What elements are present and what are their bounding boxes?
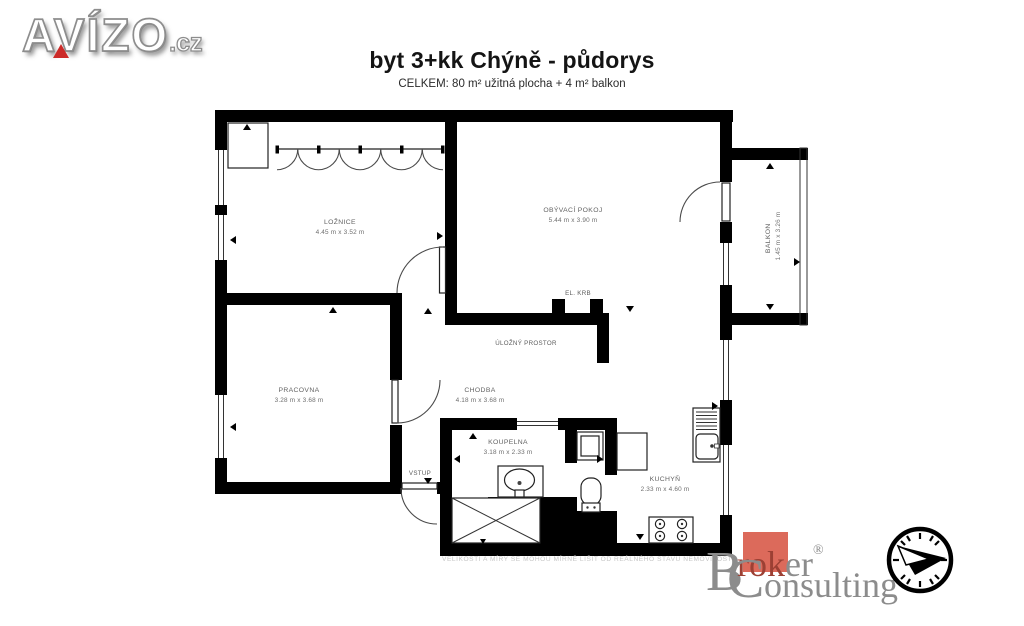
toilet-symbol bbox=[581, 478, 601, 512]
page-subtitle: CELKEM: 80 m² užitná plocha + 4 m² balko… bbox=[0, 78, 1024, 90]
disclaimer-text: VELIKOSTI A MÍRY SE MOHOU MÍRNĚ LIŠIT OD… bbox=[442, 554, 737, 563]
consulting-word-rest: onsulting bbox=[764, 565, 898, 605]
feature-label-el-krb: EL. KRB bbox=[565, 290, 591, 297]
compass-icon bbox=[889, 529, 951, 591]
room-label-loznice: LOŽNICE bbox=[324, 217, 356, 226]
kitchen-sink-symbol bbox=[693, 408, 720, 462]
wardrobe-symbol bbox=[228, 123, 445, 170]
floorplan-page: AVÍZO.cz byt 3+kk Chýně - půdorys CELKEM… bbox=[0, 0, 1024, 626]
registered-mark: ® bbox=[813, 543, 824, 558]
page-title: byt 3+kk Chýně - půdorys bbox=[0, 47, 1024, 74]
room-dims-obyvaci-pokoj: 5.44 m x 3.90 m bbox=[549, 217, 598, 224]
consulting-initial-c: C bbox=[727, 548, 764, 610]
washing-machine-symbol bbox=[577, 432, 603, 460]
room-dims-koupelna: 3.18 m x 2.33 m bbox=[484, 449, 533, 456]
fridge-symbol bbox=[617, 433, 647, 470]
stove-symbol bbox=[649, 517, 693, 543]
room-dims-kuchyn: 2.33 m x 4.60 m bbox=[641, 486, 690, 493]
room-label-koupelna: KOUPELNA bbox=[488, 439, 528, 446]
room-dims-chodba: 4.18 m x 3.68 m bbox=[456, 397, 505, 404]
broker-consulting-logo: B roker® C onsulting bbox=[706, 529, 951, 610]
room-dims-loznice: 4.45 m x 3.52 m bbox=[316, 229, 365, 236]
room-label-chodba: CHODBA bbox=[464, 387, 495, 394]
room-label-balkon: BALKON 1.45 m x 3.26 m bbox=[757, 212, 782, 261]
room-label-obyvaci-pokoj: OBÝVACÍ POKOJ bbox=[543, 205, 602, 214]
room-label-kuchyn: KUCHYŇ bbox=[650, 474, 681, 483]
feature-label-vstup: VSTUP bbox=[409, 470, 431, 477]
floorplan-drawing: LOŽNICE 4.45 m x 3.52 m OBÝVACÍ POKOJ 5.… bbox=[0, 0, 1024, 626]
room-label-pracovna: PRACOVNA bbox=[279, 387, 320, 394]
balcony-railing bbox=[800, 148, 807, 325]
shower-symbol bbox=[452, 498, 540, 544]
room-dims-pracovna: 3.28 m x 3.68 m bbox=[275, 397, 324, 404]
bathroom-sink-symbol bbox=[498, 466, 543, 497]
feature-label-ulozny-prostor: ÚLOŽNÝ PROSTOR bbox=[495, 339, 557, 347]
